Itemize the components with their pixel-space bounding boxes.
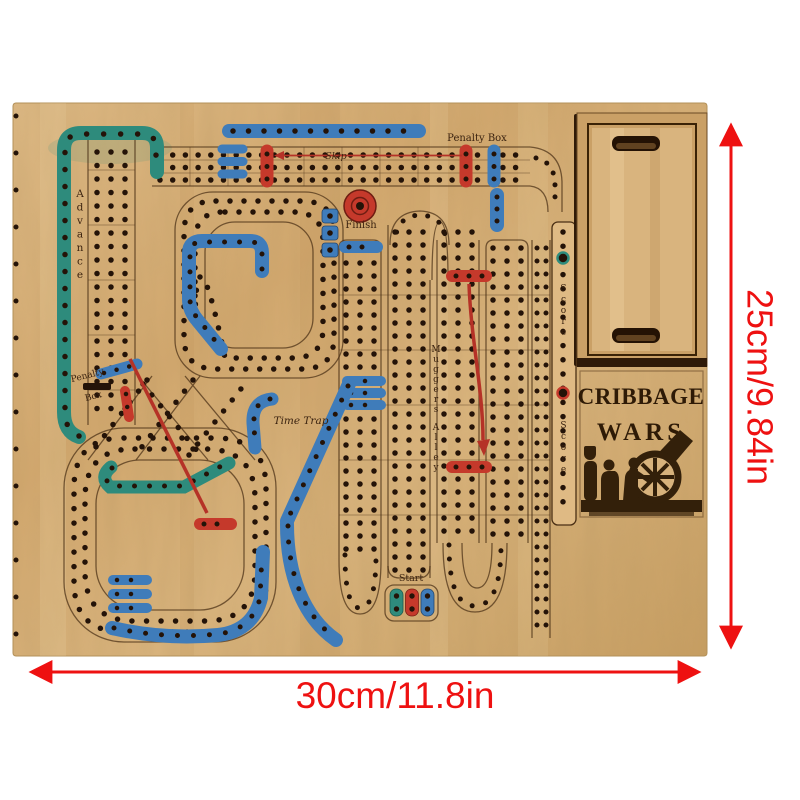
label-skip: Skip	[325, 151, 346, 162]
game-board: Skip Penalty Box Finish Advance Penalty …	[13, 103, 707, 656]
label-start: Start	[399, 573, 424, 584]
box-slot-top-inner	[616, 143, 656, 149]
blue-peg-stack	[322, 209, 338, 257]
soldier-figure	[601, 471, 619, 501]
label-score-upper: Score	[560, 284, 566, 338]
finish-marker	[344, 190, 376, 222]
box-bottom-shadow	[577, 358, 707, 367]
soldier-figure	[584, 461, 597, 501]
penalty-box-bar	[83, 383, 111, 390]
score-hole-red	[558, 388, 569, 399]
label-finish: Finish	[345, 220, 377, 231]
label-advance: Advance	[75, 188, 84, 281]
box-slot-bottom-inner	[616, 335, 656, 341]
card-storage-box	[574, 113, 707, 367]
start-box	[390, 589, 434, 616]
height-dimension-label: 25cm/9.84in	[739, 289, 780, 485]
box-lid-grain	[650, 128, 660, 351]
label-time-trap: Time Trap	[274, 415, 329, 427]
label-penalty-box-top: Penalty Box	[447, 133, 507, 144]
box-lid-grain	[610, 128, 624, 351]
screenshot: Skip Penalty Box Finish Advance Penalty …	[0, 0, 800, 800]
box-lid	[592, 128, 692, 351]
width-dimension-label: 30cm/11.8in	[296, 675, 495, 716]
label-score-lower: Score	[560, 421, 566, 475]
board-title-line1: CRIBBAGE	[578, 384, 705, 409]
product-image: Skip Penalty Box Finish Advance Penalty …	[0, 0, 800, 800]
cannon-wheel-hub	[650, 472, 661, 483]
score-hole-teal	[558, 253, 569, 264]
